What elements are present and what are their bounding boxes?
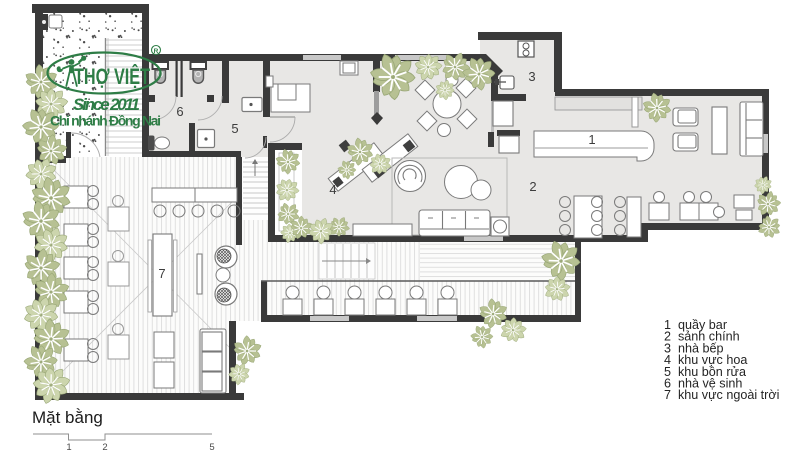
svg-text:5: 5	[209, 442, 214, 450]
svg-text:R: R	[154, 48, 159, 55]
svg-text:7: 7	[664, 388, 671, 402]
svg-text:5: 5	[231, 121, 238, 136]
svg-text:Chi nhánh Đồng Nai: Chi nhánh Đồng Nai	[50, 113, 161, 129]
svg-text:6: 6	[176, 104, 183, 119]
svg-text:3: 3	[528, 69, 535, 84]
svg-text:Mặt bằng: Mặt bằng	[32, 408, 103, 427]
svg-text:khu vực ngoài trời: khu vực ngoài trời	[678, 388, 779, 402]
svg-text:1: 1	[66, 442, 71, 450]
svg-text:THỢ VIỆT: THỢ VIỆT	[74, 64, 150, 89]
svg-text:2: 2	[529, 179, 536, 194]
svg-text:7: 7	[158, 266, 165, 281]
svg-text:4: 4	[329, 182, 336, 197]
svg-text:2: 2	[102, 442, 107, 450]
svg-text:Since 2011: Since 2011	[73, 95, 140, 114]
svg-text:1: 1	[588, 132, 595, 147]
